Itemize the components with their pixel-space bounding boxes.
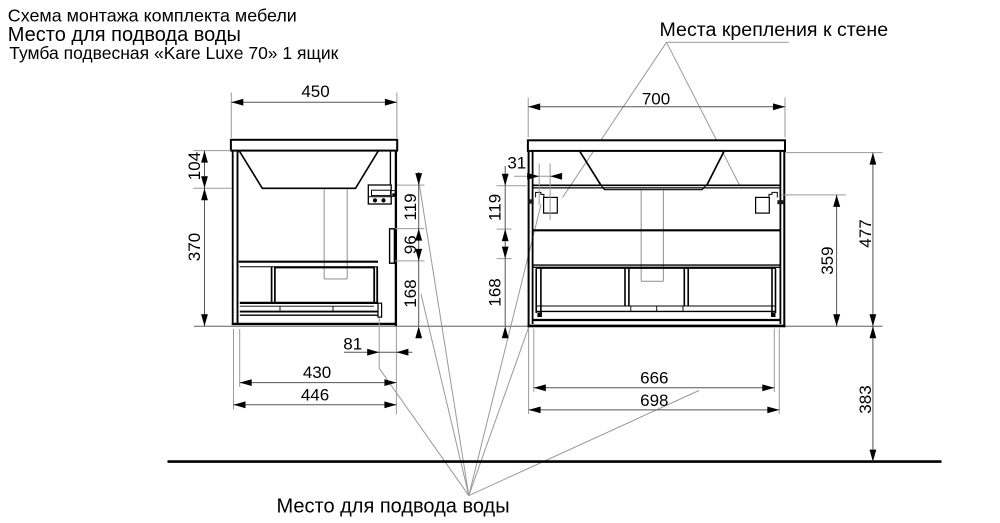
svg-text:430: 430 [303,363,331,382]
svg-text:Места крепления к стене: Места крепления к стене [660,19,889,41]
svg-text:700: 700 [642,90,670,109]
svg-text:96: 96 [401,235,420,254]
svg-text:168: 168 [401,279,420,307]
svg-text:104: 104 [185,152,204,180]
svg-text:Место для подвода воды: Место для подвода воды [277,496,510,518]
svg-text:666: 666 [640,368,668,387]
svg-text:359: 359 [818,246,837,274]
svg-text:450: 450 [301,82,329,101]
svg-text:370: 370 [185,233,204,261]
svg-text:698: 698 [640,391,668,410]
svg-text:Тумба подвесная «Kare Luxe 70»: Тумба подвесная «Kare Luxe 70» 1 ящик [9,43,338,63]
svg-text:446: 446 [301,385,329,404]
svg-text:119: 119 [401,193,420,220]
svg-text:Схема монтажа комплекта мебели: Схема монтажа комплекта мебели [8,6,297,26]
svg-text:31: 31 [507,154,526,173]
svg-text:81: 81 [343,334,362,353]
svg-text:168: 168 [486,278,505,306]
svg-text:477: 477 [856,219,875,247]
svg-text:383: 383 [856,385,875,413]
svg-text:119: 119 [486,194,505,221]
